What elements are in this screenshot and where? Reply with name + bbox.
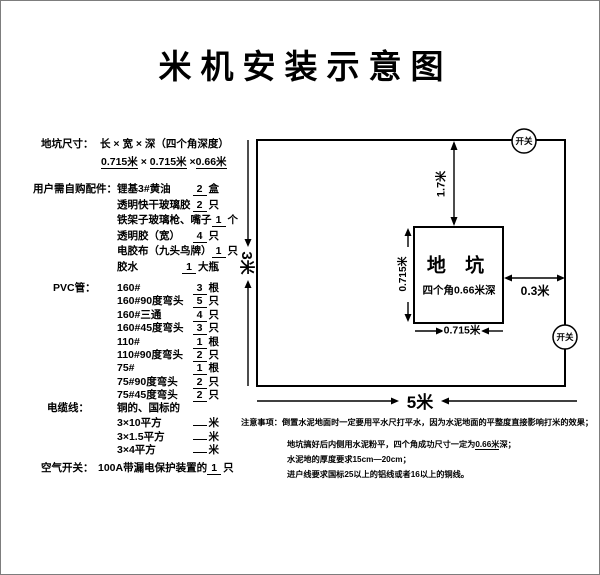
item-qty: 4只 xyxy=(193,230,220,243)
breaker-row: 100A带漏电保护装置的1只 xyxy=(98,462,234,475)
pit-size-sep1: × xyxy=(141,156,147,168)
pvc-list: 160# 3根 160#90度弯头 5只 160#三通 4只 160#45度弯头… xyxy=(117,282,219,403)
item-qty: 3只 xyxy=(193,322,220,335)
list-item: 胶水 1大瓶 xyxy=(117,261,219,277)
pit-size-v2: 0.715米 xyxy=(150,156,187,169)
list-item: 3×4平方 米 xyxy=(117,444,219,458)
list-item: 75#90度弯头 2只 xyxy=(117,376,219,389)
breaker-desc: 100A带漏电保护装置的 xyxy=(98,462,207,474)
item-name: 160#三通 xyxy=(117,309,161,322)
list-item: 透明快干玻璃胶 2只 xyxy=(117,199,219,215)
cable-spec-note: 铜的、国标的 xyxy=(117,402,180,415)
item-qty: 4只 xyxy=(193,309,220,322)
dim-pit-right-gap: 0.3米 xyxy=(521,284,550,298)
list-item: 160#三通 4只 xyxy=(117,309,219,322)
room-outline xyxy=(257,140,565,386)
item-qty: 2只 xyxy=(193,389,220,402)
item-name: 75#90度弯头 xyxy=(117,376,178,389)
parts-list: 锂基3#黄油 2盒 透明快干玻璃胶 2只 铁架子玻璃枪、嘴子 1个 透明胶（宽）… xyxy=(117,183,219,277)
pit-size-v3: 0.66米 xyxy=(196,156,227,169)
list-item: 电胶布（九头鸟牌） 1只 xyxy=(117,245,219,261)
list-item: 3×10平方 米 xyxy=(117,417,219,431)
notes-text-2c: 深； xyxy=(499,440,515,449)
cable-list: 3×10平方 米 3×1.5平方 米 3×4平方 米 xyxy=(117,417,219,458)
list-item: 3×1.5平方 米 xyxy=(117,431,219,445)
item-name: 160#45度弯头 xyxy=(117,322,184,335)
item-name: 110#90度弯头 xyxy=(117,349,183,362)
switch-right-badge: 开关 xyxy=(556,332,573,342)
item-name: 透明胶（宽） xyxy=(117,230,180,243)
item-name: 75#45度弯头 xyxy=(117,389,178,402)
item-name: 锂基3#黄油 xyxy=(117,183,171,196)
notes-text-1: 倒置水泥地面时一定要用平水尺打平水，因为水泥地面的平整度直接影响打米的效果； xyxy=(282,418,593,427)
item-name: 透明快干玻璃胶 xyxy=(117,199,191,212)
notes-line-1: 注意事项：倒置水泥地面时一定要用平水尺打平水，因为水泥地面的平整度直接影响打米的… xyxy=(241,418,593,428)
item-qty: 1大瓶 xyxy=(182,261,219,274)
item-qty: 米 xyxy=(193,444,220,457)
item-name: 160# xyxy=(117,282,140,295)
list-item: 铁架子玻璃枪、嘴子 1个 xyxy=(117,214,219,230)
item-name: 电胶布（九头鸟牌） xyxy=(117,245,212,258)
item-name: 胶水 xyxy=(117,261,138,274)
item-qty: 2只 xyxy=(193,349,220,362)
dim-room-height: 3米 xyxy=(237,251,255,274)
notes-text-2b: 0.66米 xyxy=(475,440,499,450)
item-name: 160#90度弯头 xyxy=(117,295,184,308)
breaker-qty: 1 xyxy=(207,463,221,475)
list-item: 75#45度弯头 2只 xyxy=(117,389,219,402)
item-name: 75# xyxy=(117,362,135,375)
item-name: 3×10平方 xyxy=(117,417,162,430)
notes-line-4: 进户线要求国标25以上的铝线或者16以上的铜线。 xyxy=(287,470,469,480)
pit-size-values: 0.715米 × 0.715米 ×0.66米 xyxy=(101,156,227,169)
item-qty: 1根 xyxy=(193,336,220,349)
list-item: 110# 1根 xyxy=(117,336,219,349)
item-qty: 1只 xyxy=(212,245,239,258)
notes-line-3: 水泥地的厚度要求15cm—20cm； xyxy=(287,455,411,465)
item-name: 铁架子玻璃枪、嘴子 xyxy=(117,214,212,227)
pit-title: 地 坑 xyxy=(427,256,491,279)
notes-line-2: 地坑搞好后内侧用水泥粉平，四个角成功尺寸一定为0.66米深； xyxy=(287,440,516,450)
pit-size-sep2: × xyxy=(189,156,195,168)
list-item: 110#90度弯头 2只 xyxy=(117,349,219,362)
item-qty: 米 xyxy=(193,417,220,430)
item-name: 3×1.5平方 xyxy=(117,431,165,444)
list-item: 160#45度弯头 3只 xyxy=(117,322,219,335)
item-name: 110# xyxy=(117,336,140,349)
item-qty: 3根 xyxy=(193,282,220,295)
dim-pit-height: 0.715米 xyxy=(398,256,410,291)
installation-sheet: 米机安装示意图 地坑尺寸： 长 × 宽 × 深（四个角深度） 0.715米 × … xyxy=(0,0,600,575)
switch-top-badge: 开关 xyxy=(515,136,532,146)
notes-label: 注意事项： xyxy=(241,418,282,427)
item-qty: 5只 xyxy=(193,295,220,308)
list-item: 160#90度弯头 5只 xyxy=(117,295,219,308)
item-qty: 米 xyxy=(193,431,220,444)
dim-pit-top-gap: 1.7米 xyxy=(435,171,448,197)
notes-text-2a: 地坑搞好后内侧用水泥粉平，四个角成功尺寸一定为 xyxy=(287,440,475,449)
list-item: 75# 1根 xyxy=(117,362,219,375)
pit-depth-note: 四个角0.66米深 xyxy=(423,285,496,298)
item-qty: 1个 xyxy=(212,214,239,227)
item-qty: 2盒 xyxy=(193,183,220,196)
item-qty: 2只 xyxy=(193,199,220,212)
page-title: 米机安装示意图 xyxy=(1,47,600,87)
parts-label: 用户需自购配件： xyxy=(33,183,117,196)
dim-room-width: 5米 xyxy=(407,393,433,413)
pit-size-label: 地坑尺寸： xyxy=(41,138,94,151)
list-item: 透明胶（宽） 4只 xyxy=(117,230,219,246)
item-name: 3×4平方 xyxy=(117,444,156,457)
list-item: 160# 3根 xyxy=(117,282,219,295)
dim-pit-width: 0.715米 xyxy=(443,325,482,338)
pit-size-v1: 0.715米 xyxy=(101,156,138,169)
breaker-label: 空气开关： xyxy=(41,462,94,475)
cable-label: 电缆线： xyxy=(47,402,89,415)
pvc-label: PVC管： xyxy=(53,282,96,295)
pit-size-formula: 长 × 宽 × 深（四个角深度） xyxy=(100,138,229,151)
list-item: 锂基3#黄油 2盒 xyxy=(117,183,219,199)
item-qty: 1根 xyxy=(193,362,220,375)
item-qty: 2只 xyxy=(193,376,220,389)
breaker-unit: 只 xyxy=(223,462,234,474)
